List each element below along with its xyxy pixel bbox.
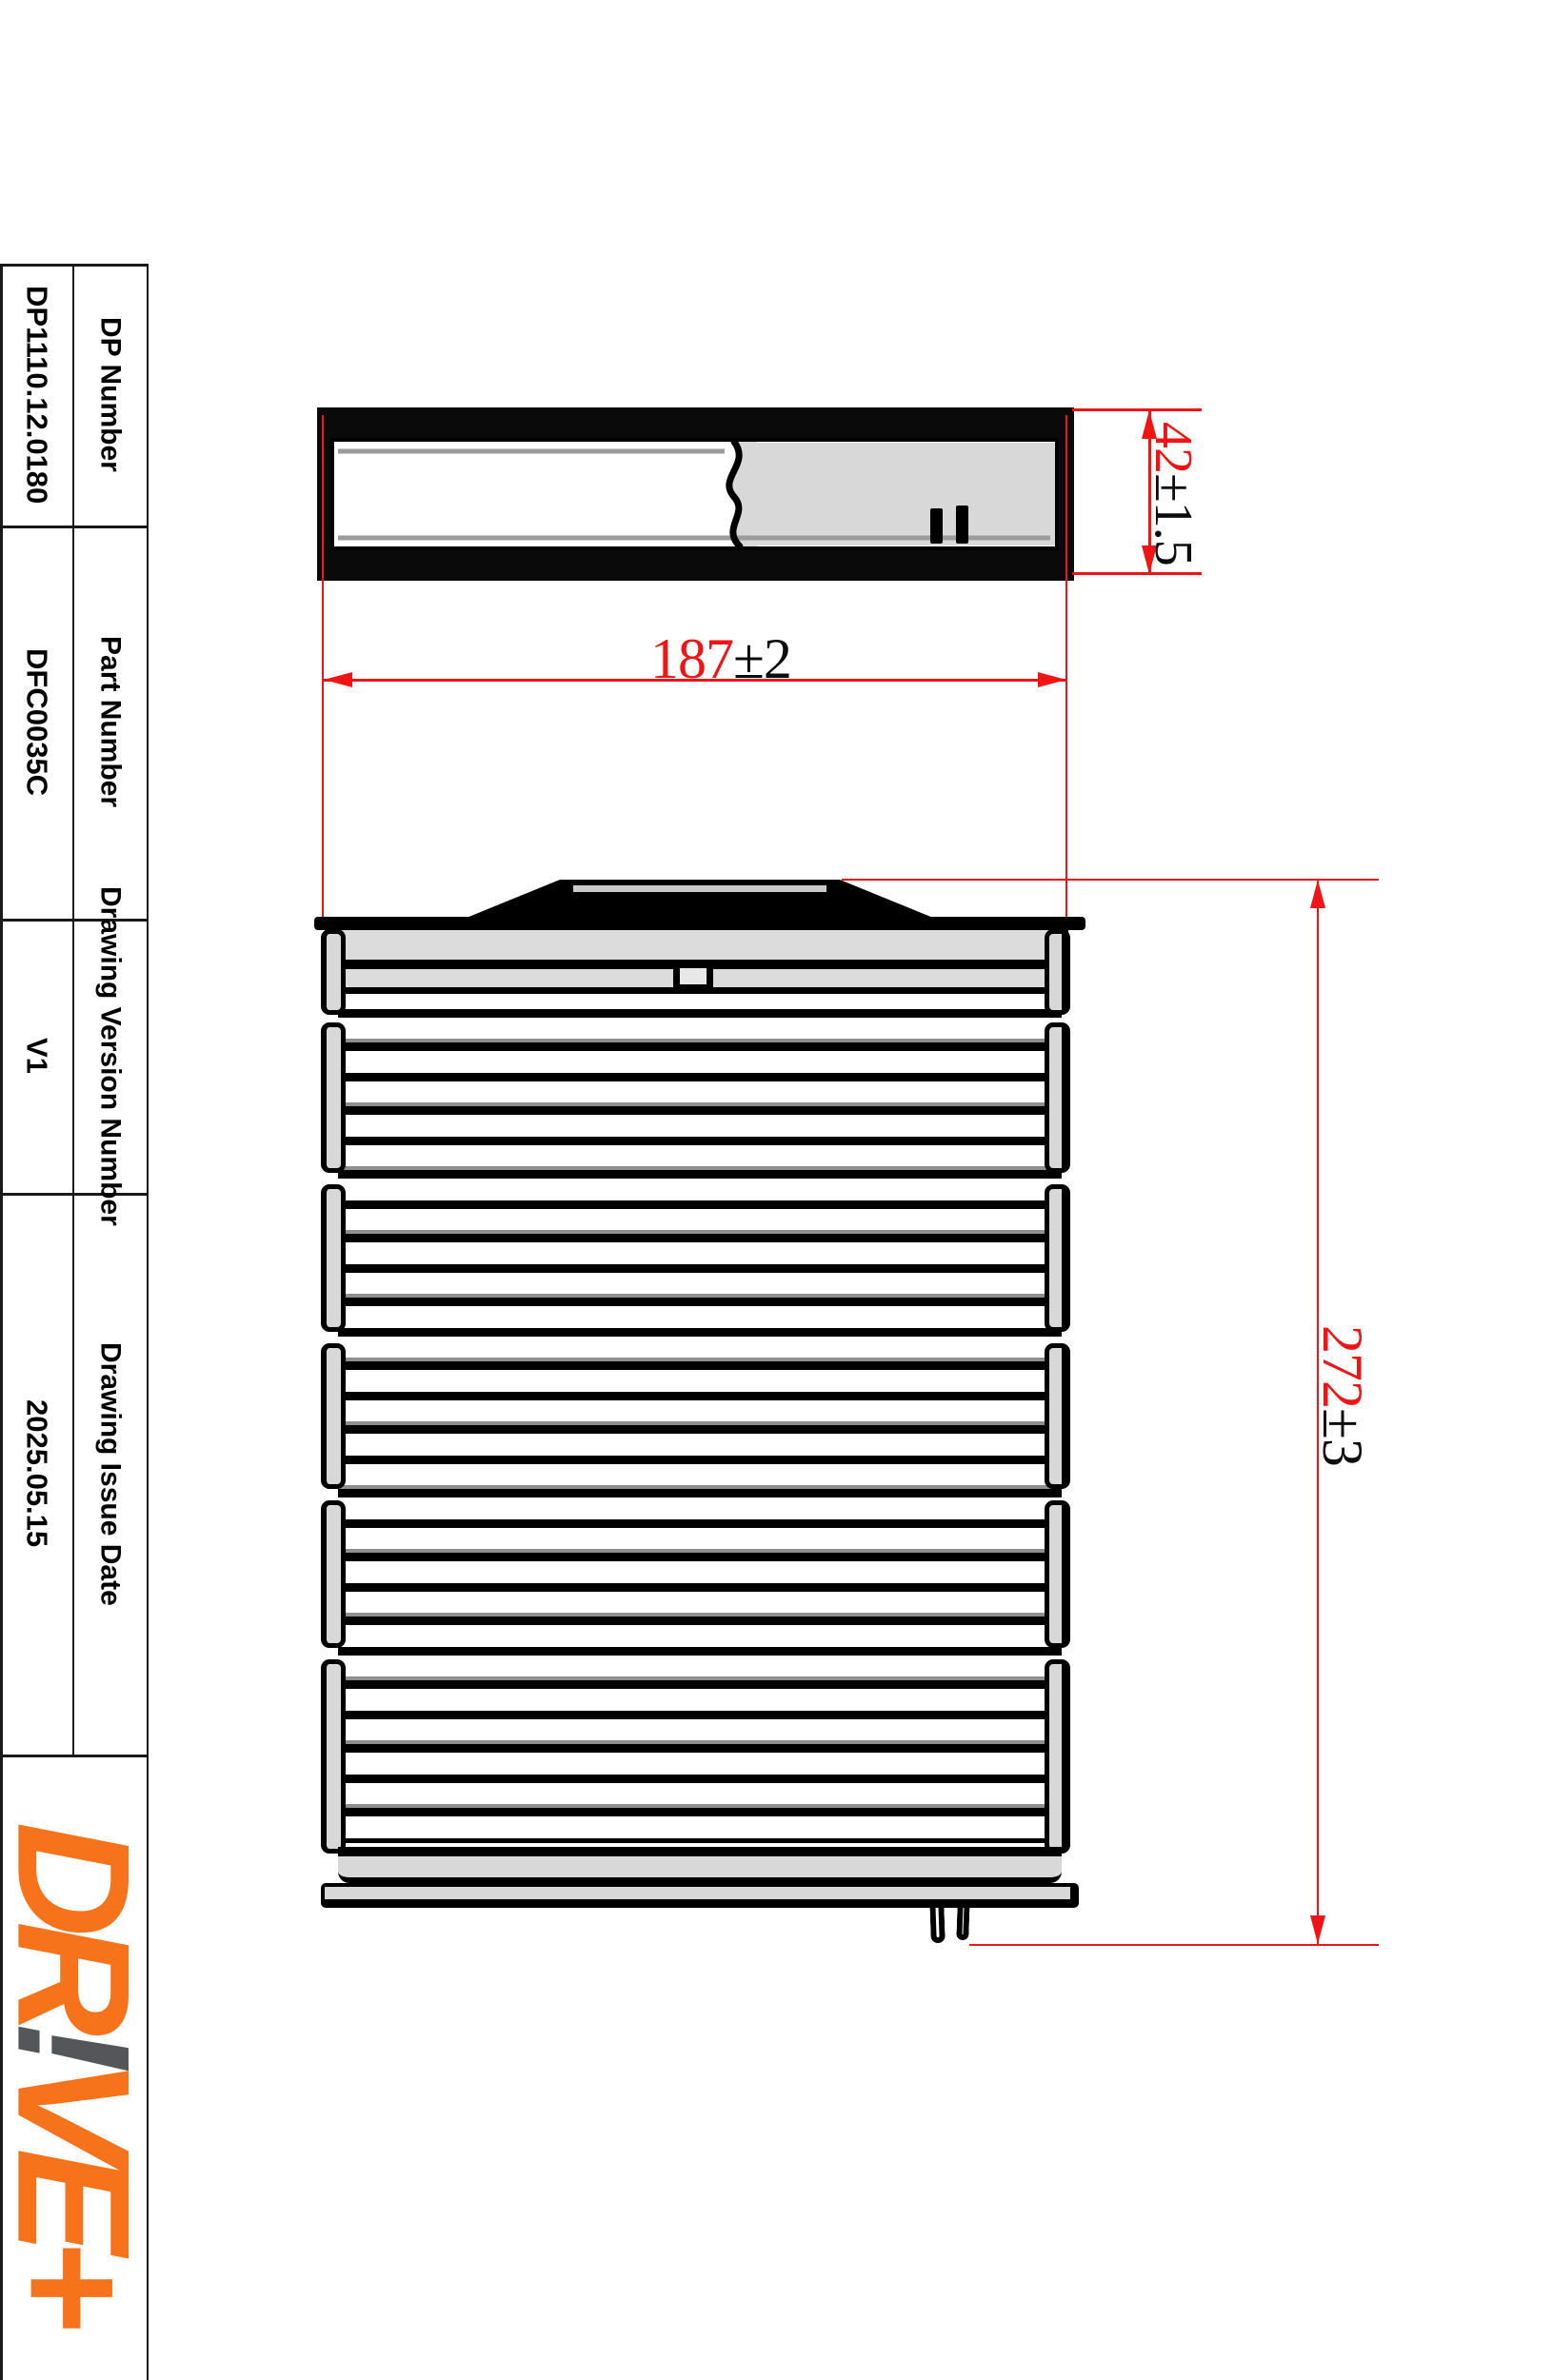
right-rail-segment	[1045, 1022, 1070, 1173]
dim-width-tolerance: ±2	[733, 627, 791, 690]
dome-slot	[573, 885, 826, 892]
issue-date-label: Drawing Issue Date	[73, 1193, 147, 1755]
issue-date-value: 2025.05.15	[0, 1193, 73, 1755]
filter-pleats	[338, 1009, 1062, 1843]
dp-number-value-text: DP1110.12.0180	[20, 286, 54, 504]
dim-arrow-height-top	[1310, 880, 1325, 908]
filter-side-view	[317, 407, 1074, 581]
dp-number-label-text: DP Number	[94, 317, 127, 472]
issue-date-label-text: Drawing Issue Date	[94, 1342, 127, 1606]
drawing-version-value: V1	[0, 919, 73, 1193]
right-rail-segment	[1045, 1184, 1070, 1332]
dim-arrow-width-left	[324, 672, 352, 687]
right-rail-segment	[1045, 929, 1070, 1015]
part-number-value-text: DFC0035C	[20, 648, 54, 796]
ext-line-height-top	[842, 879, 1379, 882]
filter-side-view-drawing	[317, 407, 1074, 581]
dim-height-value: 272	[1311, 1325, 1374, 1408]
drawing-version-label-text: Drawing Version Number	[94, 886, 127, 1226]
part-number-value: DFC0035C	[0, 526, 73, 919]
dim-height-tolerance: ±3	[1311, 1408, 1374, 1466]
right-rail-segment	[1045, 1500, 1070, 1648]
dim-width-value: 187	[650, 627, 733, 690]
logo-segment-ve-plus: VE+	[0, 2057, 163, 2315]
left-rail-segment	[321, 1500, 346, 1648]
right-rail-segment	[1045, 1343, 1070, 1489]
dp-number-value: DP1110.12.0180	[0, 264, 73, 526]
drawing-version-value-text: V1	[20, 1038, 54, 1074]
dim-depth-tolerance: ±1.5	[1144, 473, 1203, 565]
ext-line-depth-top	[1072, 408, 1202, 411]
filter-bottom-bar	[338, 1847, 1062, 1883]
brand-logo: DR!VE+	[0, 1756, 147, 2380]
dim-arrow-width-right	[1038, 672, 1066, 687]
logo-segment-exclaim: !	[0, 2020, 163, 2057]
dim-text-depth: 42±1.5	[1146, 422, 1200, 565]
dim-arrow-height-bottom	[1310, 1915, 1325, 1944]
issue-date-value-text: 2025.05.15	[20, 1399, 54, 1547]
ext-line-width-right	[1065, 415, 1068, 917]
bottom-prong	[956, 1899, 969, 1940]
logo-segment-dr: DR	[0, 1821, 163, 2020]
filter-dome-cap	[467, 880, 933, 918]
brand-logo-text: DR!VE+	[0, 1821, 153, 2315]
filter-front-view	[321, 880, 1079, 1946]
left-rail-segment	[321, 1184, 346, 1332]
part-number-label: Part Number	[73, 526, 147, 919]
left-rail-segment	[321, 1343, 346, 1489]
ext-line-width-left	[322, 415, 325, 917]
ext-line-depth-bottom	[1072, 572, 1202, 575]
left-rail-segment	[321, 1022, 346, 1173]
dim-depth-value: 42	[1144, 422, 1203, 473]
filter-clip	[673, 962, 713, 991]
dim-text-height: 272±3	[1314, 1325, 1371, 1466]
part-number-label-text: Part Number	[94, 636, 127, 807]
bottom-prong	[929, 1899, 946, 1943]
left-rail-segment	[321, 1659, 346, 1854]
dim-text-width: 187±2	[650, 630, 791, 687]
right-rail-segment	[1045, 1659, 1070, 1854]
dp-number-label: DP Number	[73, 264, 147, 526]
filter-rim	[314, 917, 1085, 930]
drawing-version-label: Drawing Version Number	[73, 919, 147, 1193]
left-rail-segment	[321, 929, 346, 1015]
